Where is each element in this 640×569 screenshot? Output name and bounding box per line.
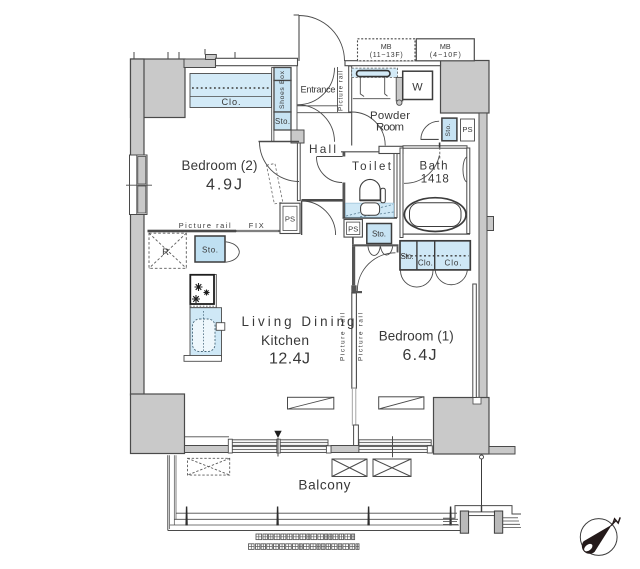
svg-text:Shoes Box: Shoes Box [279, 70, 286, 109]
svg-text:(11~13F): (11~13F) [370, 52, 403, 59]
svg-text:Picture rail: Picture rail [179, 221, 231, 230]
svg-text:Kitchen: Kitchen [261, 333, 309, 348]
svg-text:FIX: FIX [249, 221, 264, 230]
svg-text:Sto.: Sto. [372, 230, 386, 239]
svg-text:Sto.: Sto. [275, 117, 290, 126]
svg-text:Clo.: Clo. [222, 97, 241, 107]
svg-text:Entrance: Entrance [301, 85, 336, 95]
svg-text:Sto.: Sto. [202, 246, 218, 255]
svg-text:W: W [412, 82, 423, 94]
svg-text:(4~10F): (4~10F) [430, 52, 461, 59]
svg-text:Bath: Bath [420, 161, 448, 173]
svg-text:Clo.: Clo. [445, 259, 462, 268]
svg-text:PS: PS [285, 215, 295, 224]
svg-text:Sto.: Sto. [401, 252, 414, 261]
svg-text:Room: Room [376, 122, 404, 134]
svg-text:PS: PS [462, 125, 472, 134]
svg-text:Sto.: Sto. [445, 123, 452, 136]
svg-text:Picture rail: Picture rail [357, 313, 364, 361]
svg-text:Bedroom (1): Bedroom (1) [379, 328, 454, 343]
svg-text:Picture rail: Picture rail [337, 71, 344, 111]
svg-text:Powder: Powder [370, 110, 410, 122]
svg-text:R: R [162, 247, 169, 258]
svg-text:Bedroom (2): Bedroom (2) [182, 158, 258, 173]
svg-text:MB: MB [440, 42, 451, 51]
svg-text:12.4J: 12.4J [269, 350, 310, 367]
svg-text:Living Dining: Living Dining [242, 314, 355, 329]
svg-text:Balcony: Balcony [298, 478, 350, 493]
svg-text:6.4J: 6.4J [403, 347, 437, 364]
svg-text:4.9J: 4.9J [206, 176, 242, 193]
svg-text:MB: MB [381, 42, 392, 51]
svg-text:Clo.: Clo. [418, 259, 433, 268]
svg-text:Picture rail: Picture rail [339, 313, 346, 361]
svg-text:1418: 1418 [421, 174, 449, 186]
svg-text:PS: PS [348, 225, 358, 234]
